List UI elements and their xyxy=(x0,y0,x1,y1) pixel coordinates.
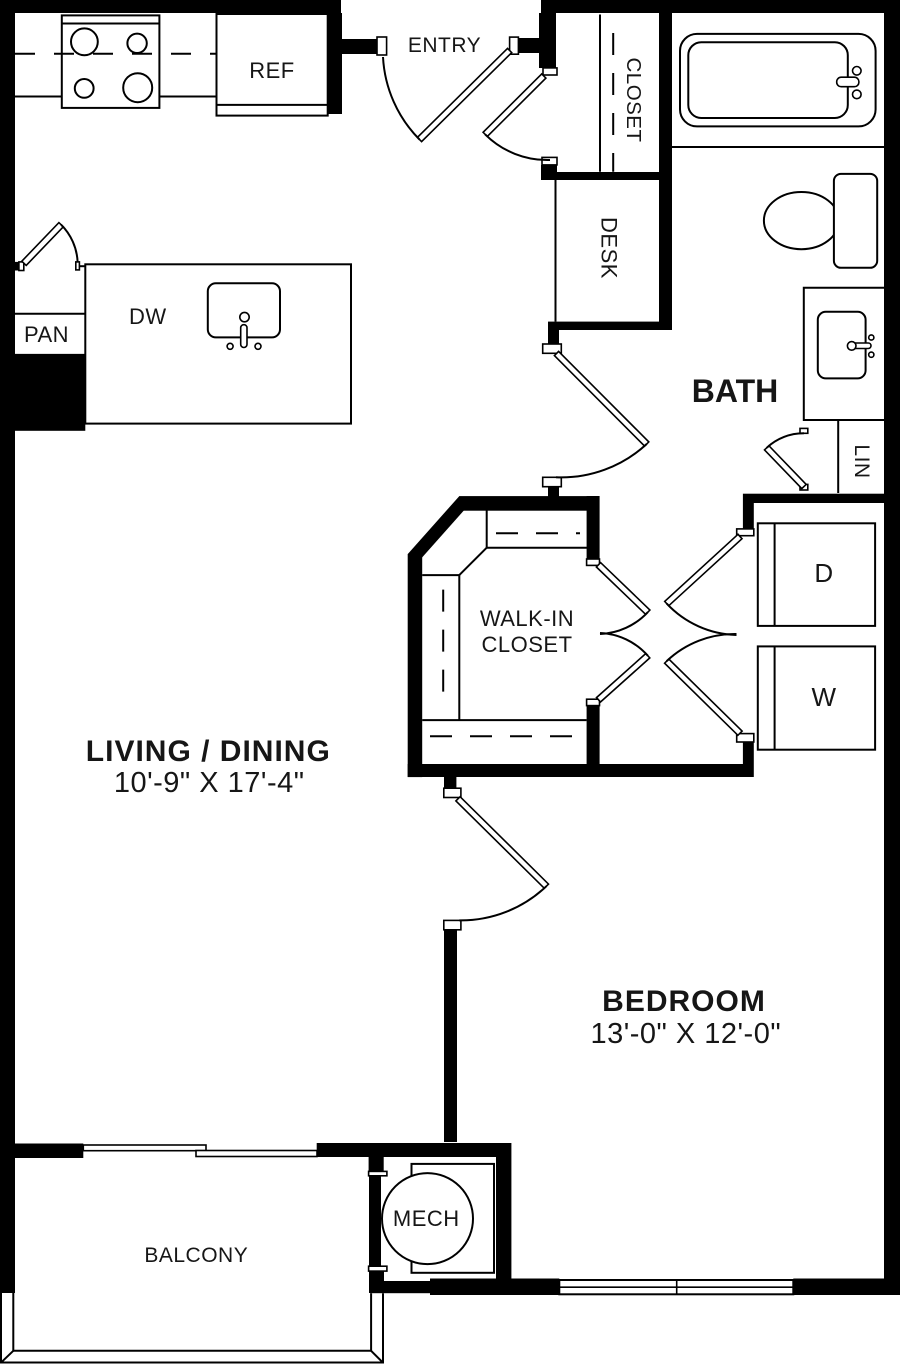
svg-text:LIN: LIN xyxy=(850,444,873,478)
svg-text:ENTRY: ENTRY xyxy=(408,34,481,57)
svg-text:W: W xyxy=(812,682,838,712)
svg-text:REF: REF xyxy=(249,58,295,83)
svg-text:CLOSET: CLOSET xyxy=(481,632,572,657)
svg-text:MECH: MECH xyxy=(393,1206,460,1231)
svg-text:BEDROOM: BEDROOM xyxy=(602,985,766,1018)
svg-text:10'-9" X 17'-4": 10'-9" X 17'-4" xyxy=(114,767,305,799)
svg-text:LIVING / DINING: LIVING / DINING xyxy=(86,735,331,768)
svg-text:BATH: BATH xyxy=(692,373,779,409)
svg-text:CLOSET: CLOSET xyxy=(622,57,645,142)
svg-text:DW: DW xyxy=(129,304,167,329)
svg-text:D: D xyxy=(814,558,834,588)
svg-text:PAN: PAN xyxy=(24,322,69,347)
svg-text:WALK-IN: WALK-IN xyxy=(480,606,574,631)
svg-text:BALCONY: BALCONY xyxy=(144,1244,248,1267)
svg-text:DESK: DESK xyxy=(597,217,622,279)
svg-text:13'-0" X 12'-0": 13'-0" X 12'-0" xyxy=(590,1018,781,1050)
